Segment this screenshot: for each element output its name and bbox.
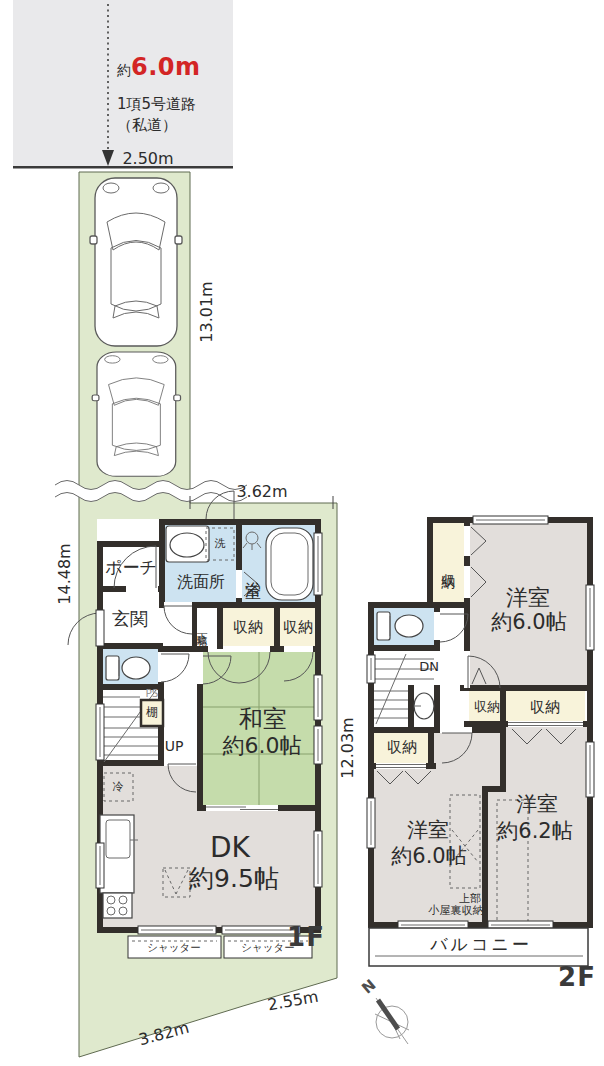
road-width-label: 約 6.0m (117, 53, 201, 81)
label-balcony: バルコニー (430, 935, 532, 954)
road-width-value: 6.0m (131, 53, 201, 81)
road-area (13, 0, 233, 169)
label-bath: 浴室 (244, 569, 262, 571)
label-room-a-size: 約6.0帖 (491, 611, 566, 635)
sink-icon (166, 526, 209, 562)
label-washitsu-size: 約6.0帖 (223, 734, 302, 759)
label-dn: DN (419, 660, 439, 675)
label-room-b-size: 約6.0帖 (391, 845, 466, 869)
washbasin-icon (414, 693, 434, 719)
label-storage-2a: 収納 (474, 700, 500, 715)
label-room-a-name: 洋室 (506, 586, 550, 611)
label-porch: ポーチ (105, 558, 157, 577)
label-storage-1b: 収納 (283, 619, 313, 636)
floorplan-page: 約 6.0m 1項5号道路 （私道） 2.50m 13.01m 14.48m 1… (0, 0, 604, 1066)
label-entrance: 玄関 (112, 609, 148, 629)
label-up: UP (165, 739, 184, 755)
label-shoebox: 下駄箱 (196, 626, 208, 629)
label-room-c-size: 約6.2帖 (497, 820, 572, 844)
car-top-2 (92, 352, 180, 476)
label-dk-size: 約9.5帖 (189, 865, 279, 893)
label-storage-1a: 収納 (233, 619, 263, 636)
label-laundry: 洗 (215, 538, 226, 550)
dim-building-top: 3.62m (236, 483, 287, 501)
label-dk-name: DK (210, 832, 250, 863)
label-fridge: 冷 (113, 781, 124, 793)
label-room-b-name: 洋室 (407, 819, 449, 843)
road-note: （私道） (117, 117, 177, 134)
label-room-c-name: 洋室 (516, 793, 558, 817)
car-top (90, 178, 182, 346)
kitchen-counter-icon (100, 815, 138, 918)
toilet1-icon (106, 656, 150, 680)
label-storage-2c: 収納 (387, 739, 417, 756)
label-shelf: 棚 (146, 706, 158, 719)
label-washroom: 洗面所 (177, 573, 225, 591)
label-storage-2top: 収納 (440, 563, 456, 565)
floorplan-drawing (0, 0, 604, 1066)
road-name: 1項5号道路 (117, 96, 196, 113)
road-width-prefix: 約 (117, 62, 131, 80)
compass-icon (375, 998, 409, 1044)
dim-driveway: 13.01m (198, 281, 216, 342)
floor2-label: 2F (558, 963, 596, 992)
label-storage-2b: 収納 (530, 699, 560, 716)
dim-frontage: 2.50m (122, 150, 173, 168)
label-shutter-left: シャッター (147, 942, 200, 954)
dim-site-left: 14.48m (56, 543, 74, 604)
label-washitsu-name: 和室 (239, 706, 287, 733)
dim-site-right: 12.03m (339, 717, 357, 778)
floor1-label: 1F (287, 923, 325, 952)
label-attic-2: 小屋裏収納 (429, 905, 484, 917)
label-ps: PS (146, 688, 159, 700)
